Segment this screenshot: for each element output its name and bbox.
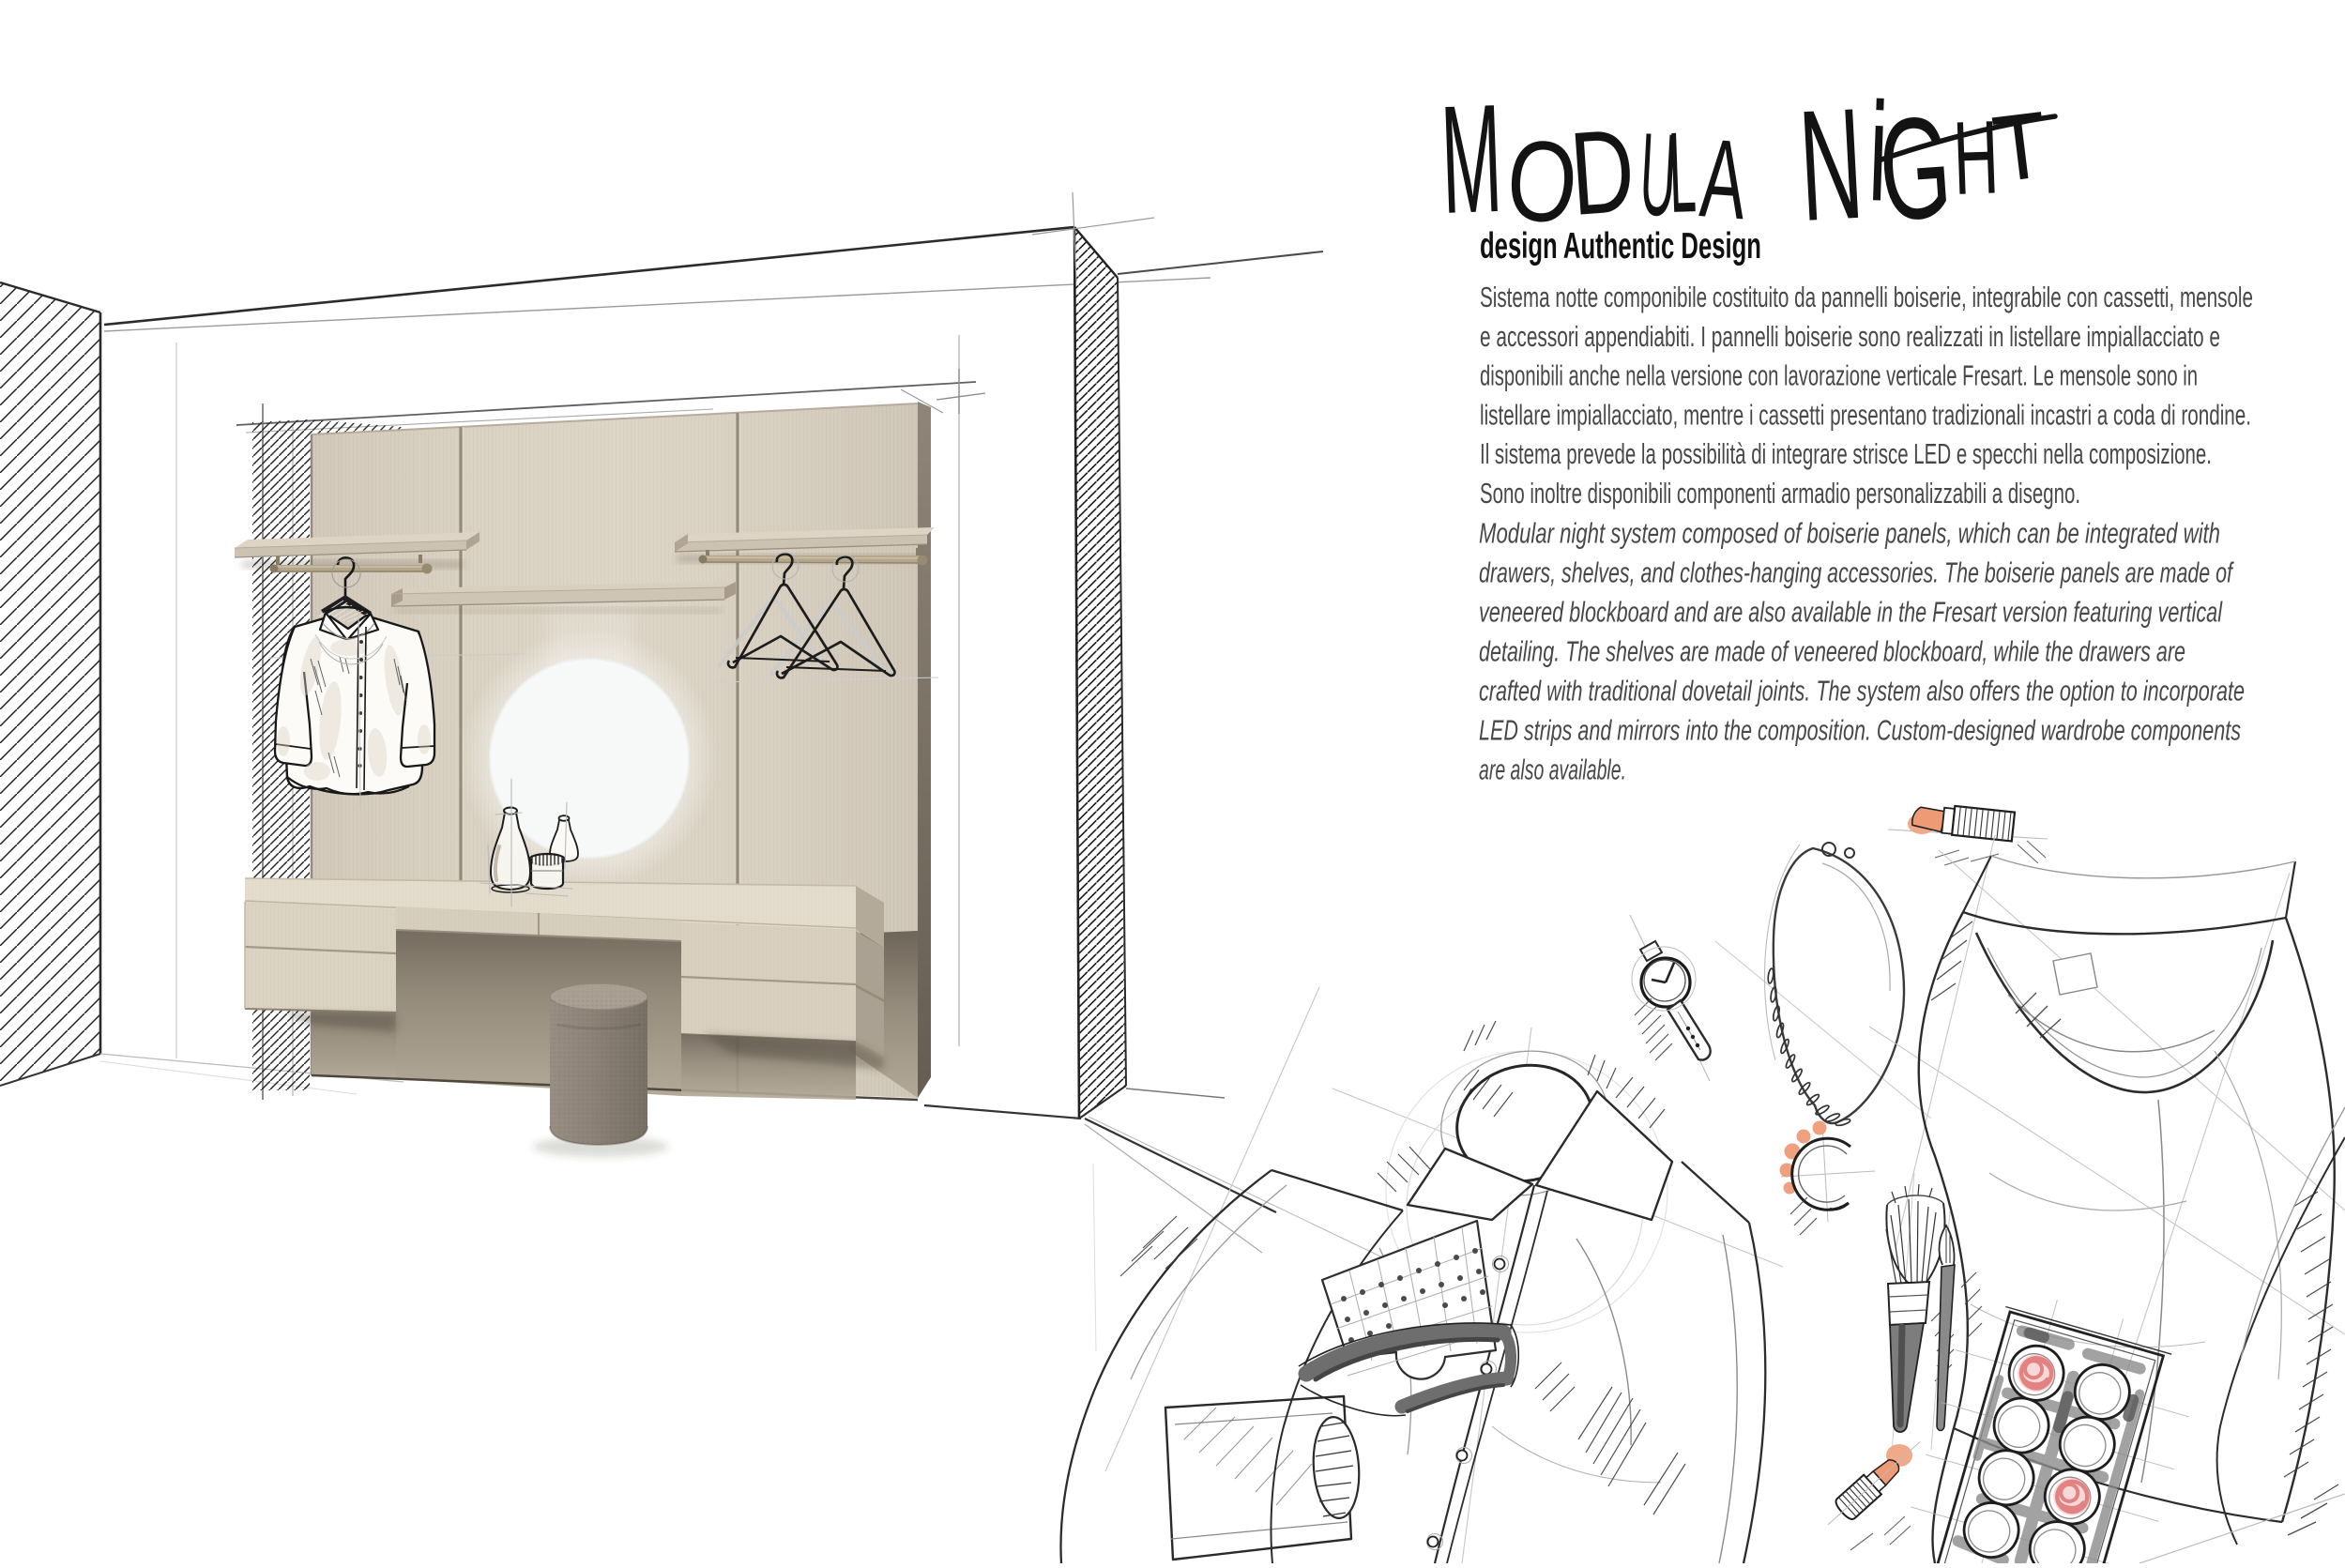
svg-text:disponibili anche nella versio: disponibili anche nella versione con lav… bbox=[1480, 359, 2198, 392]
svg-text:A: A bbox=[1697, 114, 1750, 242]
svg-text:are also available.: are also available. bbox=[1479, 754, 1626, 786]
svg-text:Il sistema prevede la possibil: Il sistema prevede la possibilità di int… bbox=[1480, 437, 2212, 470]
svg-text:drawers, shelves, and clothes-: drawers, shelves, and clothes-hanging ac… bbox=[1479, 556, 2234, 589]
svg-text:design Authentic Design: design Authentic Design bbox=[1480, 226, 1761, 266]
svg-text:N: N bbox=[1795, 74, 1866, 254]
svg-text:L: L bbox=[1667, 107, 1698, 236]
svg-text:LED strips and mirrors into th: LED strips and mirrors into the composit… bbox=[1479, 714, 2241, 747]
svg-text:detailing. The shelves are mad: detailing. The shelves are made of venee… bbox=[1479, 635, 2185, 668]
svg-text:Modular night system composed: Modular night system composed of boiseri… bbox=[1479, 517, 2220, 550]
svg-text:Sistema notte componibile cost: Sistema notte componibile costituito da … bbox=[1480, 281, 2253, 313]
svg-text:veneered blockboard and are al: veneered blockboard and are also availab… bbox=[1479, 596, 2223, 629]
svg-text:G: G bbox=[1874, 85, 1956, 251]
svg-text:e accessori appendiabiti. I pa: e accessori appendiabiti. I pannelli boi… bbox=[1480, 320, 2220, 353]
svg-text:M: M bbox=[1439, 73, 1505, 247]
svg-text:listellare impiallacciato, men: listellare impiallacciato, mentre i cass… bbox=[1480, 398, 2251, 431]
svg-text:crafted with traditional dovet: crafted with traditional dovetail joints… bbox=[1479, 675, 2245, 708]
svg-text:Sono inoltre disponibili compo: Sono inoltre disponibili componenti arma… bbox=[1480, 477, 2080, 510]
svg-text:D: D bbox=[1566, 105, 1638, 240]
